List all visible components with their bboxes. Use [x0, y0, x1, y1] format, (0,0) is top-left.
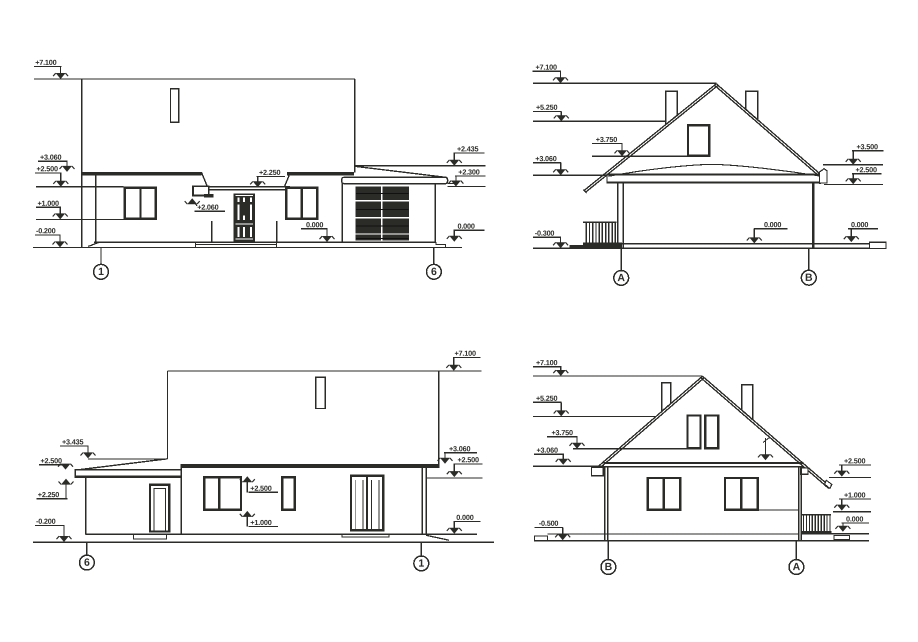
svg-text:6: 6	[431, 266, 437, 278]
svg-text:+2.300: +2.300	[458, 168, 479, 177]
svg-text:+3.060: +3.060	[40, 153, 61, 162]
svg-text:+7.100: +7.100	[35, 58, 56, 67]
svg-text:+2.060: +2.060	[197, 203, 218, 212]
svg-text:+2.435: +2.435	[457, 144, 478, 153]
svg-text:+7.100: +7.100	[536, 358, 557, 367]
svg-text:1: 1	[98, 266, 104, 278]
svg-text:0.000: 0.000	[851, 220, 868, 229]
svg-text:B: B	[805, 272, 813, 284]
svg-text:+3.060: +3.060	[536, 446, 557, 455]
svg-text:+2.500: +2.500	[40, 456, 61, 465]
svg-text:B: B	[605, 561, 613, 573]
svg-text:A: A	[793, 561, 801, 573]
svg-text:+1.000: +1.000	[844, 491, 865, 500]
svg-text:+3.060: +3.060	[449, 444, 470, 453]
svg-text:+3.750: +3.750	[551, 428, 572, 437]
svg-text:+2.500: +2.500	[844, 456, 865, 465]
svg-text:+3.060: +3.060	[535, 154, 556, 163]
svg-text:6: 6	[84, 557, 90, 569]
svg-text:+2.250: +2.250	[259, 168, 280, 177]
svg-text:0.000: 0.000	[456, 513, 473, 522]
svg-text:-0.200: -0.200	[36, 226, 56, 235]
svg-text:+3.500: +3.500	[856, 142, 877, 151]
svg-text:-0.500: -0.500	[539, 519, 559, 528]
svg-text:+3.435: +3.435	[62, 437, 83, 446]
svg-text:0.000: 0.000	[457, 222, 474, 231]
svg-text:+1.000: +1.000	[250, 518, 271, 527]
svg-text:+3.750: +3.750	[596, 135, 617, 144]
svg-text:+2.500: +2.500	[250, 484, 271, 493]
svg-text:-0.300: -0.300	[535, 229, 555, 238]
svg-text:+2.500: +2.500	[457, 455, 478, 464]
svg-text:+5.250: +5.250	[536, 394, 557, 403]
svg-text:1: 1	[418, 558, 424, 570]
svg-text:+2.250: +2.250	[38, 490, 59, 499]
svg-text:0.000: 0.000	[846, 515, 863, 524]
svg-text:0.000: 0.000	[306, 220, 323, 229]
svg-text:+1.000: +1.000	[37, 199, 58, 208]
svg-text:+2.500: +2.500	[855, 165, 876, 174]
svg-text:+7.100: +7.100	[454, 349, 475, 358]
svg-text:0.000: 0.000	[764, 220, 781, 229]
svg-text:+5.250: +5.250	[536, 103, 557, 112]
svg-text:+2.500: +2.500	[36, 164, 57, 173]
svg-text:A: A	[617, 272, 625, 284]
svg-text:+7.100: +7.100	[535, 63, 556, 72]
svg-text:-0.200: -0.200	[36, 517, 56, 526]
